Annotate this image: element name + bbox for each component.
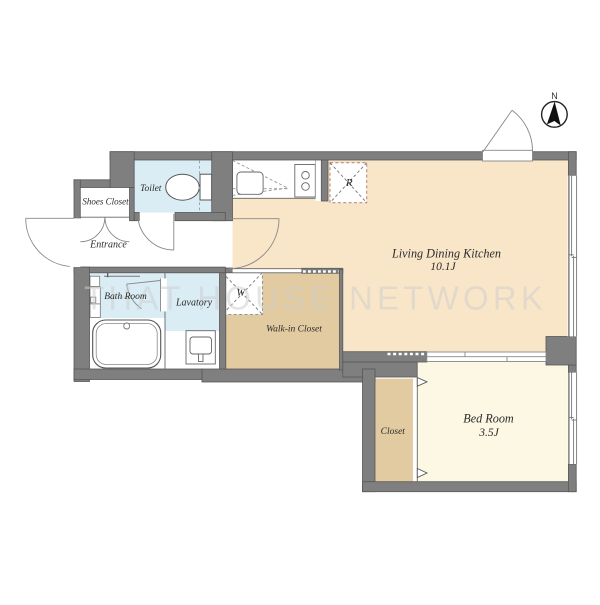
svg-text:3.5J: 3.5J — [478, 427, 499, 439]
svg-text:Entrance: Entrance — [89, 240, 127, 251]
svg-text:Shoes Closet: Shoes Closet — [82, 196, 129, 206]
svg-text:Bed Room: Bed Room — [463, 412, 514, 426]
svg-text:N: N — [551, 91, 558, 101]
svg-text:Closet: Closet — [381, 427, 406, 437]
svg-text:Lavatory: Lavatory — [175, 298, 213, 309]
svg-text:Walk-in Closet: Walk-in Closet — [266, 325, 322, 335]
svg-text:10.1J: 10.1J — [430, 261, 456, 273]
svg-text:Bath Room: Bath Room — [104, 292, 147, 302]
svg-text:THAT HOUSE NETWORK: THAT HOUSE NETWORK — [84, 280, 547, 317]
svg-text:Toilet: Toilet — [140, 184, 162, 194]
svg-text:R: R — [345, 177, 353, 189]
svg-text:Living Dining Kitchen: Living Dining Kitchen — [391, 247, 501, 261]
